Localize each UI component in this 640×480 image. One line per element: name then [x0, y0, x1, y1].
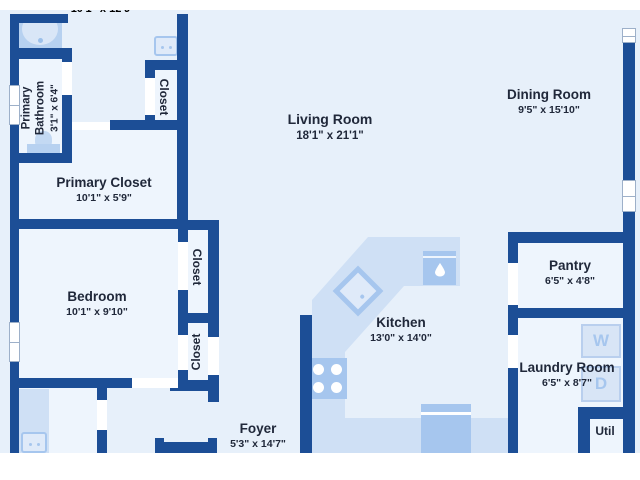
door-opening — [178, 242, 188, 290]
burner-icon — [313, 382, 324, 393]
room-label-util: Util — [595, 424, 614, 438]
room-dims: 9'5" x 15'10" — [507, 104, 591, 117]
window-rung — [10, 342, 19, 343]
floor-plan: W D — [0, 0, 640, 480]
room-dims: 6'5" x 8'7" — [519, 377, 614, 390]
room-dims: 3'1" x 6'4" — [49, 81, 62, 135]
burner-icon — [313, 364, 324, 375]
room-name: Bathroom — [34, 81, 48, 135]
room-name: Kitchen — [370, 315, 432, 331]
wall — [178, 313, 219, 323]
wall — [623, 28, 635, 453]
room-label-foyer: Foyer 5'3" x 14'7" — [230, 421, 286, 451]
room-label-dining-room: Dining Room 9'5" x 15'10" — [507, 87, 591, 117]
door-opening — [145, 78, 155, 115]
washer-letter: W — [593, 331, 609, 351]
room-name: Primary Closet — [56, 175, 151, 191]
wall — [508, 232, 634, 243]
room-name: Closet — [189, 334, 203, 371]
sink-icon — [21, 432, 47, 453]
burner-icon — [331, 364, 342, 375]
room-name: Pantry — [545, 258, 595, 274]
door-opening — [97, 400, 107, 430]
room-name: Bedroom — [66, 289, 128, 305]
room-dims: 10'1" x 12'9" — [38, 10, 168, 17]
wall — [177, 14, 188, 229]
window-rung — [623, 196, 635, 197]
room-label-cutoff-room: 10'1" x 12'9" — [38, 10, 168, 31]
room-label-kitchen: Kitchen 13'0" x 14'0" — [370, 315, 432, 345]
faucet-dot-icon — [161, 46, 164, 49]
faucet-dot-icon — [38, 38, 43, 43]
wall — [97, 388, 107, 400]
room-name: Foyer — [230, 421, 286, 437]
wall — [300, 315, 312, 453]
faucet-dot-icon — [169, 46, 172, 49]
wall — [145, 60, 155, 78]
window-icon — [622, 180, 636, 212]
wall — [110, 120, 178, 130]
wall — [155, 438, 164, 453]
window-icon — [622, 28, 636, 43]
stove-icon — [309, 358, 347, 399]
room-label-primary-bathroom: Primary Bathroom 3'1" x 6'4" — [20, 81, 61, 135]
wall — [97, 430, 107, 453]
room-dims: 18'1" x 21'1" — [288, 129, 373, 143]
room-dims: 5'3" x 14'7" — [230, 438, 286, 451]
wall — [10, 378, 132, 388]
room-label-bedroom: Bedroom 10'1" x 9'10" — [66, 289, 128, 319]
room-dims: 10'1" x 9'10" — [66, 306, 128, 319]
window-icon — [9, 322, 20, 362]
door-opening — [208, 337, 219, 375]
burner-icon — [331, 382, 342, 393]
room-name: Living Room — [288, 111, 373, 128]
washer-icon: W — [581, 324, 621, 358]
room-name: Dining Room — [507, 87, 591, 103]
wall — [178, 229, 188, 242]
room-dims: 10'1" x 5'9" — [56, 192, 151, 205]
room-name: Closet — [157, 79, 171, 116]
wall — [10, 219, 177, 229]
faucet-dot-icon — [37, 443, 40, 446]
room-label-living-room: Living Room 18'1" x 21'1" — [288, 111, 373, 143]
drain-dot-icon — [359, 294, 365, 300]
room-label-closet-upper: Closet — [190, 249, 204, 286]
window-rung — [623, 36, 635, 37]
wall — [518, 308, 634, 318]
room-name: Closet — [190, 249, 204, 286]
wall — [145, 115, 155, 130]
water-droplet-icon — [434, 263, 446, 277]
room-dims: 13'0" x 14'0" — [370, 332, 432, 345]
dishwasher-icon — [421, 404, 471, 453]
wall — [62, 48, 72, 62]
door-opening — [132, 378, 178, 388]
sink-icon — [154, 36, 178, 56]
faucet-dot-icon — [29, 443, 32, 446]
door-opening — [178, 335, 188, 370]
room-name: Util — [595, 424, 614, 438]
fridge-handle-line — [423, 256, 456, 258]
dishwasher-line — [421, 412, 471, 415]
door-opening — [508, 263, 518, 305]
wall — [508, 368, 518, 453]
wall — [508, 232, 518, 263]
wall — [508, 305, 518, 335]
room-label-primary-closet: Primary Closet 10'1" x 5'9" — [56, 175, 151, 205]
wall — [10, 153, 72, 163]
wall — [578, 407, 590, 453]
room-dims: 6'5" x 4'8" — [545, 275, 595, 288]
room-label-closet-top: Closet — [157, 79, 171, 116]
door-opening — [62, 62, 72, 95]
door-opening — [508, 335, 518, 368]
room-name: Laundry Room — [519, 360, 614, 376]
window-icon — [9, 85, 20, 125]
window-rung — [10, 105, 19, 106]
room-label-pantry: Pantry 6'5" x 4'8" — [545, 258, 595, 288]
room-label-closet-lower: Closet — [189, 334, 203, 371]
wall — [208, 438, 217, 453]
room-label-laundry-room: Laundry Room 6'5" x 8'7" — [519, 360, 614, 390]
fridge-icon — [423, 251, 456, 285]
door-opening — [72, 122, 110, 130]
room-name: Primary — [20, 81, 34, 135]
